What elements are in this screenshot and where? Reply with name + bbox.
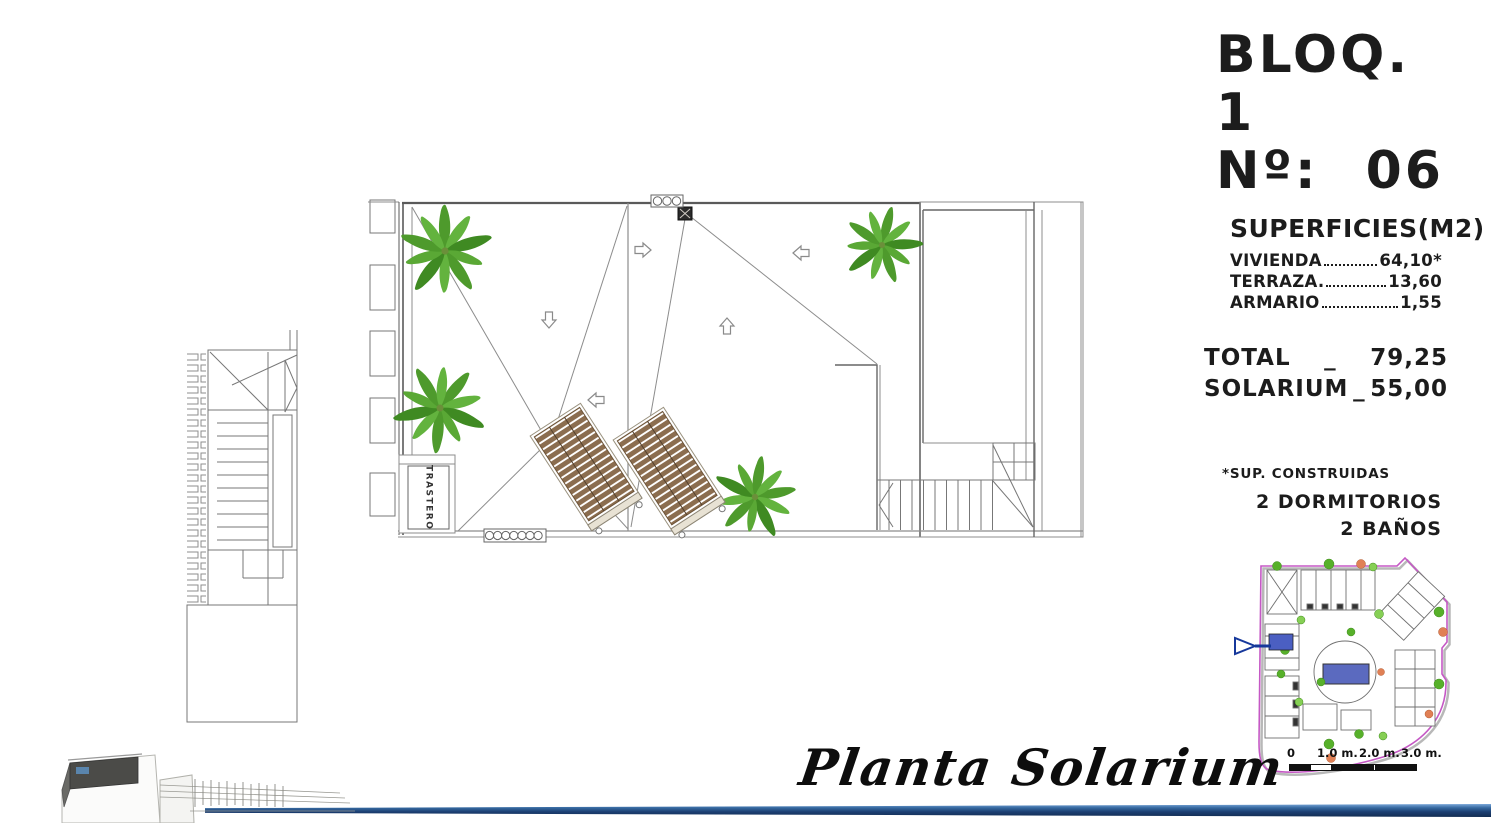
communal-staircase — [187, 330, 297, 722]
scale-label: 1.0 m. — [1317, 746, 1358, 760]
pool — [1323, 664, 1369, 684]
scale-bar-segments — [1289, 764, 1417, 771]
surfaces-panel: SUPERFICIES(M2) VIVIENDA 64,10* TERRAZA.… — [1230, 214, 1442, 312]
building-render — [40, 745, 370, 823]
total-value: 55,00 — [1370, 376, 1448, 402]
block-label: BLOQ. 1 — [1216, 26, 1444, 142]
slope-arrow-icon — [542, 312, 556, 328]
staircase — [877, 443, 1035, 530]
plan-sheet: TRASTERO BLOQ. 1 Nº: 06 SUPERFICIES(M2) … — [0, 0, 1491, 823]
roof-vent-icon — [651, 195, 683, 207]
palm-tree-icon — [399, 205, 493, 294]
surface-label: TERRAZA. — [1230, 272, 1324, 291]
unit-marker-icon — [1269, 634, 1293, 650]
unit-number-label: Nº: — [1216, 142, 1319, 200]
built-surface-note: *SUP. CONSTRUIDAS — [1222, 466, 1390, 482]
surface-row: TERRAZA. 13,60 — [1230, 270, 1442, 291]
scale-label: 3.0 m. — [1401, 746, 1442, 760]
surface-label: ARMARIO — [1230, 293, 1320, 312]
footer-accent-bar — [205, 804, 1491, 817]
unit-number-value: 06 — [1366, 142, 1444, 200]
surface-value: 13,60 — [1388, 272, 1442, 291]
total-row: TOTAL _ 79,25 — [1204, 340, 1448, 371]
palm-tree-icon — [379, 344, 506, 470]
chimney-drain-icon — [678, 207, 692, 220]
slope-arrow-icon — [793, 246, 809, 260]
sun-loungers — [530, 403, 729, 540]
total-row: SOLARIUM _ 55,00 — [1204, 371, 1448, 402]
slope-arrow-icon — [588, 393, 604, 407]
total-separator: _ — [1324, 345, 1337, 371]
total-separator: _ — [1353, 376, 1366, 402]
sun-lounger-icon — [613, 407, 729, 540]
bathrooms-label: 2 BAÑOS — [1240, 516, 1442, 543]
total-value: 79,25 — [1370, 345, 1448, 371]
plan-title: Planta Solarium — [796, 738, 1288, 797]
surface-value: 1,55 — [1400, 293, 1442, 312]
scale-label: 0 — [1287, 746, 1295, 760]
dot-leader — [1322, 306, 1398, 308]
slope-arrow-icon — [720, 318, 734, 334]
totals-panel: TOTAL _ 79,25 SOLARIUM _ 55,00 — [1204, 340, 1448, 402]
total-label: TOTAL — [1204, 345, 1291, 371]
roof-vent-strip-icon — [484, 529, 546, 542]
surface-row: VIVIENDA 64,10* — [1230, 249, 1442, 270]
surface-row: ARMARIO 1,55 — [1230, 291, 1442, 312]
surface-label: VIVIENDA — [1230, 251, 1322, 270]
surface-value: 64,10* — [1379, 251, 1442, 270]
slope-arrow-icons — [542, 243, 809, 407]
room-summary: 2 DORMITORIOS 2 BAÑOS — [1240, 489, 1442, 543]
slope-arrow-icon — [635, 243, 651, 257]
scale-labels: 0 1.0 m. 2.0 m. 3.0 m. — [1289, 746, 1421, 760]
site-buildings — [1265, 570, 1445, 738]
dot-leader — [1326, 285, 1386, 287]
surfaces-title: SUPERFICIES(M2) — [1230, 214, 1442, 243]
dot-leader — [1324, 264, 1378, 266]
floor-plan-drawing — [0, 0, 1160, 790]
palm-tree-icon — [835, 197, 931, 290]
unit-header: BLOQ. 1 Nº: 06 — [1216, 26, 1444, 200]
total-label: SOLARIUM — [1204, 376, 1348, 402]
scale-bar: 0 1.0 m. 2.0 m. 3.0 m. — [1289, 746, 1421, 771]
planter-boxes — [370, 200, 395, 516]
storage-room-label: TRASTERO — [408, 466, 449, 529]
bedrooms-label: 2 DORMITORIOS — [1240, 489, 1442, 516]
scale-label: 2.0 m. — [1359, 746, 1400, 760]
